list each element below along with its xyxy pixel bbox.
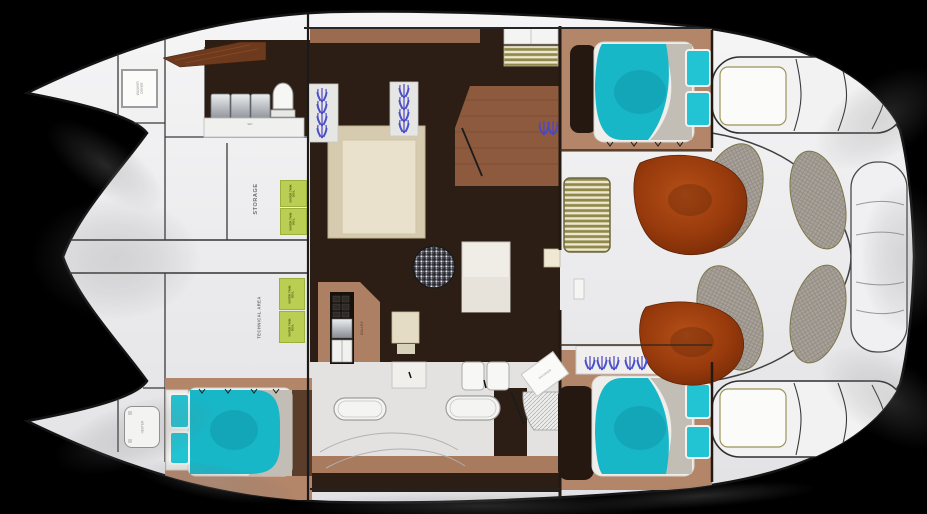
lounge-sofa	[328, 126, 425, 238]
toilet	[271, 83, 295, 117]
wardrobe	[570, 45, 597, 133]
washer-dryer-box: WASHER DRYER	[121, 69, 158, 108]
footstool	[397, 344, 415, 354]
vanity	[392, 362, 426, 388]
water-tank-label: WATER TANK 300 L	[279, 311, 305, 343]
top-cabinets	[504, 28, 558, 66]
wall-tag	[574, 279, 584, 299]
side-table	[392, 312, 419, 343]
pillow	[686, 384, 710, 418]
water-tank-label: WATER TANK 300 L	[280, 180, 307, 207]
sink	[487, 362, 509, 390]
cabin-port-aft	[560, 28, 712, 152]
oven	[332, 319, 352, 338]
bathtub	[334, 398, 386, 420]
bathtub	[446, 396, 500, 420]
heater-box: HEATER	[124, 406, 160, 448]
pillow	[686, 92, 710, 126]
wardrobe	[558, 386, 594, 480]
catamaran-deck-plan: STORAGE TECHNICAL AREA WATER TANK 300 L …	[0, 0, 927, 514]
cockpit-table-grating	[564, 178, 610, 252]
water-tank-label: WATER TANK 300 L	[280, 208, 307, 235]
dining-table	[462, 242, 510, 312]
sink	[462, 362, 484, 390]
mosaic-round-table	[413, 246, 455, 288]
water-tank-label: WATER TANK 300 L	[279, 278, 305, 310]
vanity-counter	[204, 118, 304, 137]
sideboard-box	[544, 249, 560, 267]
galley-wood-floor	[455, 86, 560, 186]
slatted-bench	[504, 46, 558, 66]
bath-dark-partition	[494, 388, 527, 458]
appliances	[211, 94, 270, 121]
saloon-top-wood-strip	[310, 28, 480, 43]
galley-counter	[330, 292, 354, 364]
pillow	[686, 426, 710, 458]
pillow	[686, 50, 710, 86]
